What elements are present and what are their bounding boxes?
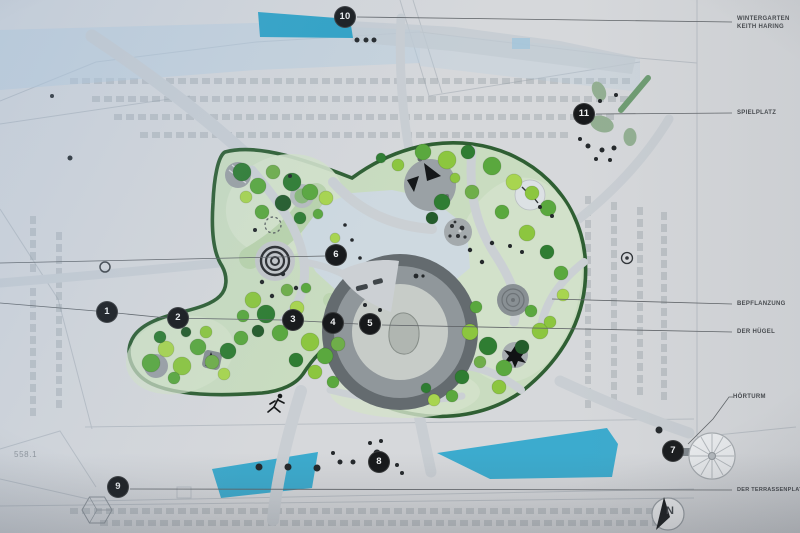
- map-marker-11: 11: [573, 103, 595, 125]
- map-marker-3: 3: [282, 309, 304, 331]
- label-hoerturm: HÖRTURM: [733, 394, 766, 402]
- photographed-site-plan: 1 2 3 4 5 6 7 8 9 10 11 WINTERGARTEN KEI…: [0, 0, 800, 533]
- label-spielplatz: SPIELPLATZ: [737, 110, 776, 118]
- map-marker-1: 1: [96, 301, 118, 323]
- map-marker-2: 2: [167, 307, 189, 329]
- dome-structure: [497, 284, 529, 316]
- label-wintergarten: WINTERGARTEN KEITH HARING: [737, 16, 790, 31]
- label-terrassenplatz: DER TERRASSENPLATZ: [737, 487, 800, 495]
- label-wintergarten-line2: KEITH HARING: [737, 24, 790, 32]
- map-marker-7: 7: [662, 440, 684, 462]
- label-der-huegel: DER HÜGEL: [737, 329, 775, 337]
- label-wintergarten-line1: WINTERGARTEN: [737, 16, 790, 24]
- tree-dot: [656, 427, 663, 434]
- ring-target-structure: [255, 241, 295, 281]
- map-marker-9: 9: [107, 476, 129, 498]
- map-marker-5: 5: [359, 313, 381, 335]
- survey-elevation-label: 558.1: [14, 450, 37, 459]
- water-basin-south: [437, 428, 618, 479]
- circle-dot-symbol: [622, 253, 633, 264]
- map-marker-10: 10: [334, 6, 356, 28]
- map-marker-4: 4: [322, 312, 344, 334]
- water-basin-southwest: [212, 452, 318, 498]
- mosaic-circle: [444, 218, 472, 246]
- map-marker-6: 6: [325, 244, 347, 266]
- hill-mound: [322, 254, 478, 410]
- compass-north-letter: N: [666, 505, 674, 517]
- hoerturm-wheel: [683, 433, 735, 479]
- label-bepflanzung: BEPFLANZUNG: [737, 301, 786, 309]
- runner-icon: [268, 394, 284, 412]
- map-marker-8: 8: [368, 451, 390, 473]
